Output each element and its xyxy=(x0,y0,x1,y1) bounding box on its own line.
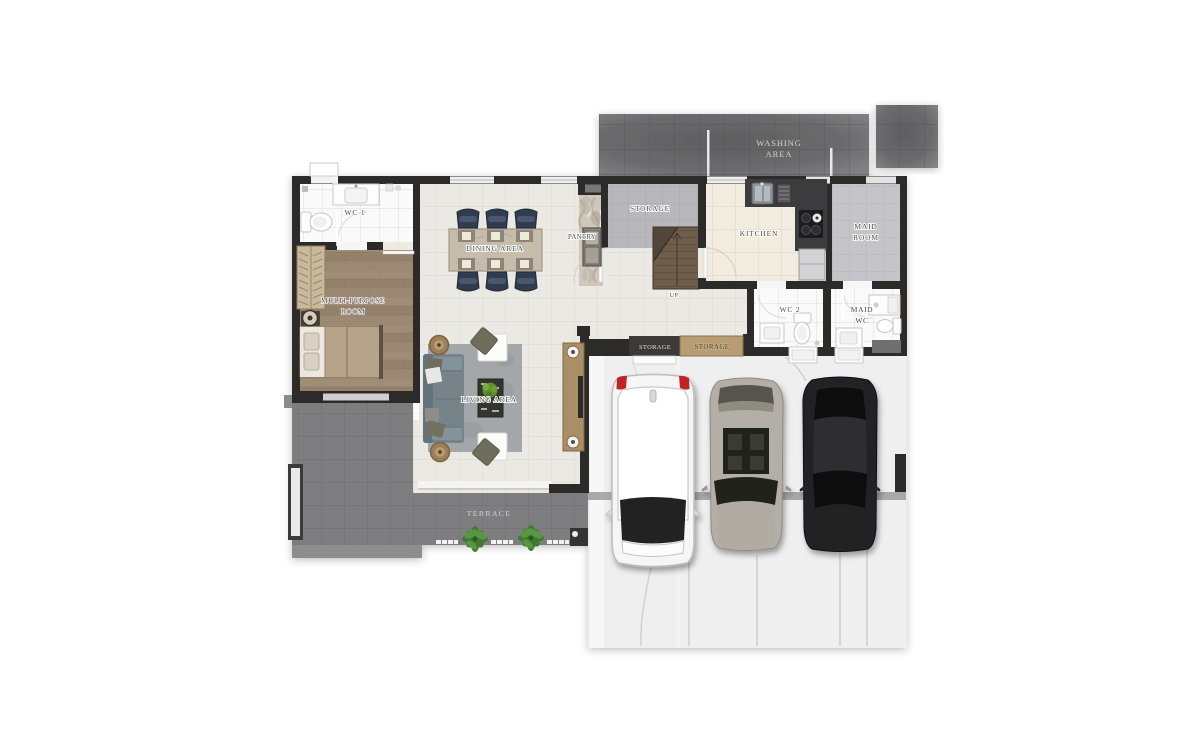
svg-text:UP: UP xyxy=(670,292,679,299)
svg-text:ROOM: ROOM xyxy=(341,307,365,316)
svg-text:WC: WC xyxy=(855,316,868,325)
svg-text:AREA: AREA xyxy=(766,149,793,159)
svg-text:LIVING AREA: LIVING AREA xyxy=(461,395,516,404)
svg-text:STORAGE: STORAGE xyxy=(639,344,671,351)
svg-text:PANTRY: PANTRY xyxy=(568,234,596,241)
svg-text:ROOM: ROOM xyxy=(853,233,879,242)
svg-text:DINING AREA: DINING AREA xyxy=(466,244,523,253)
svg-text:STORAGE: STORAGE xyxy=(630,204,670,213)
svg-text:WASHING: WASHING xyxy=(756,138,802,148)
svg-text:MULTI-PURPOSE: MULTI-PURPOSE xyxy=(321,296,385,305)
svg-text:WC 2: WC 2 xyxy=(780,305,801,314)
svg-text:WC 1: WC 1 xyxy=(345,208,366,217)
svg-text:STORAGE: STORAGE xyxy=(695,343,730,351)
svg-text:MAID: MAID xyxy=(854,222,877,231)
svg-text:MAID: MAID xyxy=(851,305,873,314)
svg-text:TERRACE: TERRACE xyxy=(467,509,512,518)
svg-text:KITCHEN: KITCHEN xyxy=(740,229,779,238)
